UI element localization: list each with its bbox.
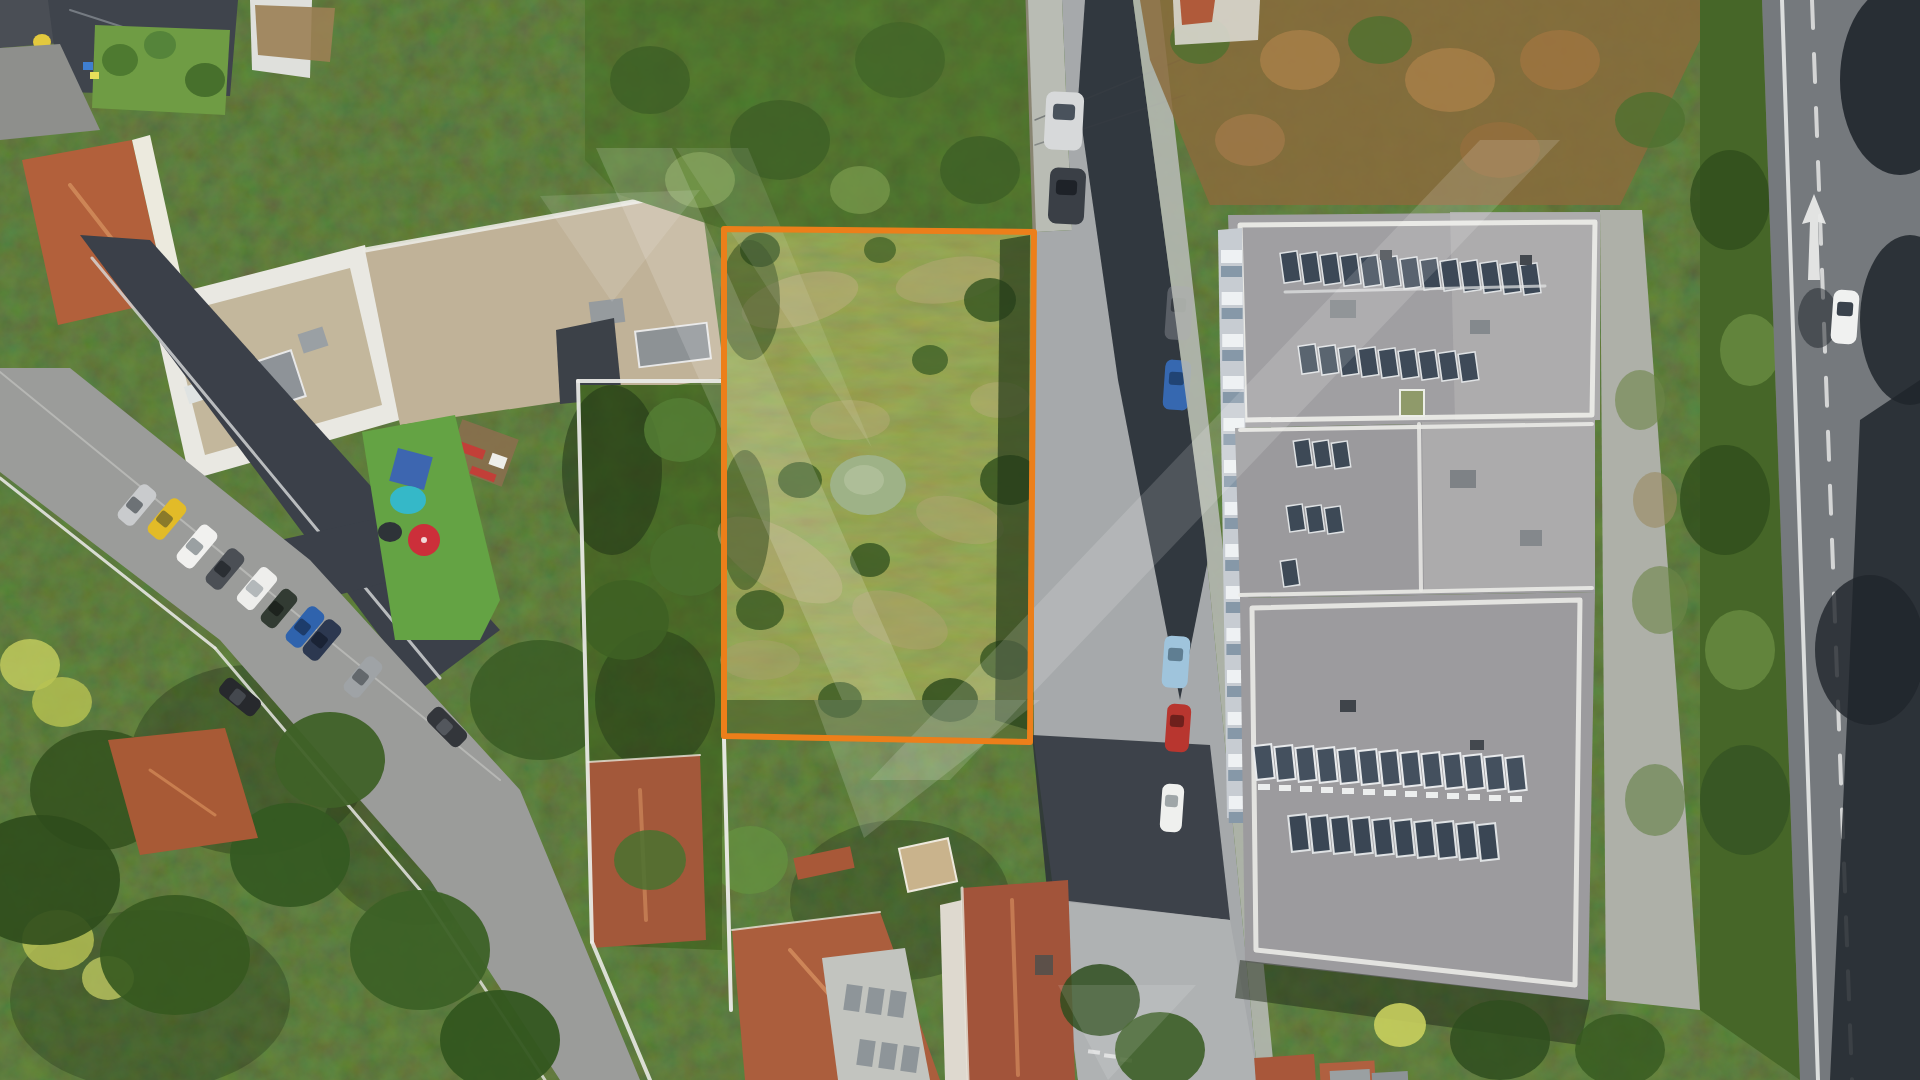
solar-panel — [1330, 816, 1352, 854]
patio-table-dark — [378, 522, 402, 542]
roof-unit — [1470, 320, 1490, 334]
dry-grass-streak — [720, 640, 800, 680]
driving-car-dark — [1048, 167, 1087, 225]
solar-panel — [1309, 815, 1331, 853]
solar-mount — [1258, 784, 1270, 790]
solar-mount — [1321, 787, 1333, 793]
solar-panel — [1358, 347, 1379, 377]
solar-panel — [1463, 754, 1484, 790]
aerial-scene — [0, 0, 1920, 1080]
car-glass — [1168, 647, 1184, 661]
verge-bush — [1700, 745, 1790, 855]
tree-canopy — [712, 826, 788, 894]
solar-panel — [1442, 753, 1463, 789]
garden-bush — [185, 63, 225, 97]
solar-panel — [1280, 251, 1301, 283]
car-glass — [1053, 103, 1076, 120]
hedge-texture — [1520, 30, 1600, 90]
solar-panel — [1500, 262, 1521, 294]
dirt-garden — [255, 5, 335, 62]
balcony-slab — [1223, 376, 1244, 389]
solar-panel — [1520, 263, 1541, 295]
parked-car-lightblue — [1161, 635, 1191, 689]
scrub-bush — [940, 136, 1020, 204]
garden-toy-blue — [83, 62, 93, 70]
solar-panel — [1456, 822, 1478, 860]
central-bush-highlight — [844, 465, 884, 495]
solar-panel — [1288, 814, 1310, 852]
solar-panel — [1358, 749, 1379, 785]
solar-panel — [1280, 559, 1299, 587]
solar-panel — [1421, 752, 1442, 788]
verge-bush — [1680, 445, 1770, 555]
parked-car-red — [1164, 703, 1191, 753]
balcony-slab — [1221, 250, 1242, 263]
grass-clump — [864, 237, 896, 263]
solar-panel — [1331, 441, 1350, 469]
roof-unit — [1450, 470, 1476, 488]
apartment-mid-sunlit — [1422, 420, 1595, 590]
solar-panel — [1300, 252, 1321, 284]
tree-canopy — [100, 895, 250, 1015]
hedge-texture — [1260, 30, 1340, 90]
solar-mount — [1279, 785, 1291, 791]
tan-shed — [899, 838, 957, 891]
solar-panel — [1418, 350, 1439, 380]
verge-bush — [1690, 150, 1770, 250]
solar-panel — [1379, 750, 1400, 786]
scrub-bush — [855, 22, 945, 98]
solar-panel — [1295, 746, 1316, 782]
yellow-flowering-tree — [1374, 1003, 1426, 1047]
solar-mount — [1510, 796, 1522, 802]
garden-bush — [581, 580, 669, 660]
solar-panel — [1372, 818, 1394, 856]
solar-panel — [1440, 259, 1461, 291]
roof-vent — [1520, 255, 1532, 265]
grass-clump — [736, 590, 784, 630]
solar-panel — [1484, 755, 1505, 791]
car-glass — [1169, 371, 1185, 385]
garden-bush — [102, 44, 138, 76]
parked-car-white — [1159, 783, 1184, 832]
garden-bush — [144, 31, 176, 59]
solar-panel — [1274, 745, 1295, 781]
solar-panel — [1505, 756, 1526, 792]
aerial-drone-photo — [0, 0, 1920, 1080]
solar-panel — [1393, 819, 1415, 857]
tree-canopy — [275, 712, 385, 808]
apartment-bottom-block — [1240, 592, 1595, 1000]
tree-shadow-highway — [1815, 575, 1920, 725]
solar-panel — [1253, 744, 1274, 780]
solar-mid-a — [1293, 439, 1350, 469]
red-tile-roof-corner — [1180, 0, 1215, 25]
solar-panel — [1378, 348, 1399, 378]
solar-panel — [1324, 506, 1343, 534]
yellow-bush — [32, 677, 92, 727]
tree-canopy — [350, 890, 490, 1010]
car-glass — [1165, 795, 1179, 808]
roof-vent — [1340, 700, 1356, 712]
hedge-green — [1615, 92, 1685, 148]
weed-patch — [1632, 566, 1688, 634]
solar-panel — [1312, 440, 1331, 468]
balcony-glass — [1222, 308, 1243, 319]
roof-unit — [1520, 530, 1542, 546]
solar-panel — [1337, 748, 1358, 784]
balcony-slab — [1222, 292, 1243, 305]
hedge-texture — [1215, 114, 1285, 166]
balcony-glass — [1222, 350, 1243, 361]
red-umbrella-center — [421, 537, 427, 543]
solar-mount — [1300, 786, 1312, 792]
solar-mount — [1489, 795, 1501, 801]
roof-vent — [1470, 740, 1484, 750]
weed-patch — [1625, 764, 1685, 836]
solar-mount — [1342, 788, 1354, 794]
garden-toy-yellow — [90, 72, 99, 79]
tree-canopy — [1450, 1000, 1550, 1080]
solar-mount — [1384, 790, 1396, 796]
solar-panel — [1414, 820, 1436, 858]
solar-panel — [1320, 253, 1341, 285]
solar-panel — [1286, 504, 1305, 532]
apartment-top-sunlit — [1450, 212, 1600, 420]
solar-panel — [1316, 747, 1337, 783]
verge-bush-light — [1720, 314, 1780, 386]
balcony-glass — [1221, 266, 1242, 277]
weed-patch — [1615, 370, 1665, 430]
hedge-green — [1348, 16, 1412, 64]
solar-mount — [1363, 789, 1375, 795]
verge-bush-light — [1705, 610, 1775, 690]
solar-panel — [1351, 817, 1373, 855]
solar-panel — [1438, 351, 1459, 381]
solar-panel — [1398, 349, 1419, 379]
parapet-white — [1419, 424, 1421, 590]
solar-panel — [1435, 821, 1457, 859]
solar-mount — [1447, 793, 1459, 799]
driving-car-silver — [1044, 91, 1085, 151]
solar-panel — [1400, 751, 1421, 787]
scrub-bush — [610, 46, 690, 114]
garden-bush — [644, 398, 716, 462]
garden-bush — [614, 830, 686, 890]
highway-car-white — [1830, 289, 1860, 345]
chimney — [1035, 955, 1053, 975]
hedge-texture — [1405, 48, 1495, 112]
solar-panel — [1477, 823, 1499, 861]
solar-panel — [1305, 505, 1324, 533]
scrub-bush — [830, 166, 890, 214]
red-roof-small — [1254, 1054, 1316, 1080]
grass-clump — [912, 345, 948, 375]
solar-mount — [1426, 792, 1438, 798]
solar-mount — [1468, 794, 1480, 800]
dry-patch — [1633, 472, 1677, 528]
balcony-slab — [1222, 334, 1243, 347]
car-glass — [1170, 715, 1185, 728]
solar-mount — [1405, 791, 1417, 797]
car-glass — [1056, 179, 1078, 195]
car-glass — [1837, 301, 1854, 316]
solar-panel — [1293, 439, 1312, 467]
solar-mid-b — [1286, 504, 1343, 534]
roof-green-hatch — [1400, 390, 1424, 416]
kiddie-pool — [390, 486, 426, 514]
solar-panel — [1458, 352, 1479, 382]
